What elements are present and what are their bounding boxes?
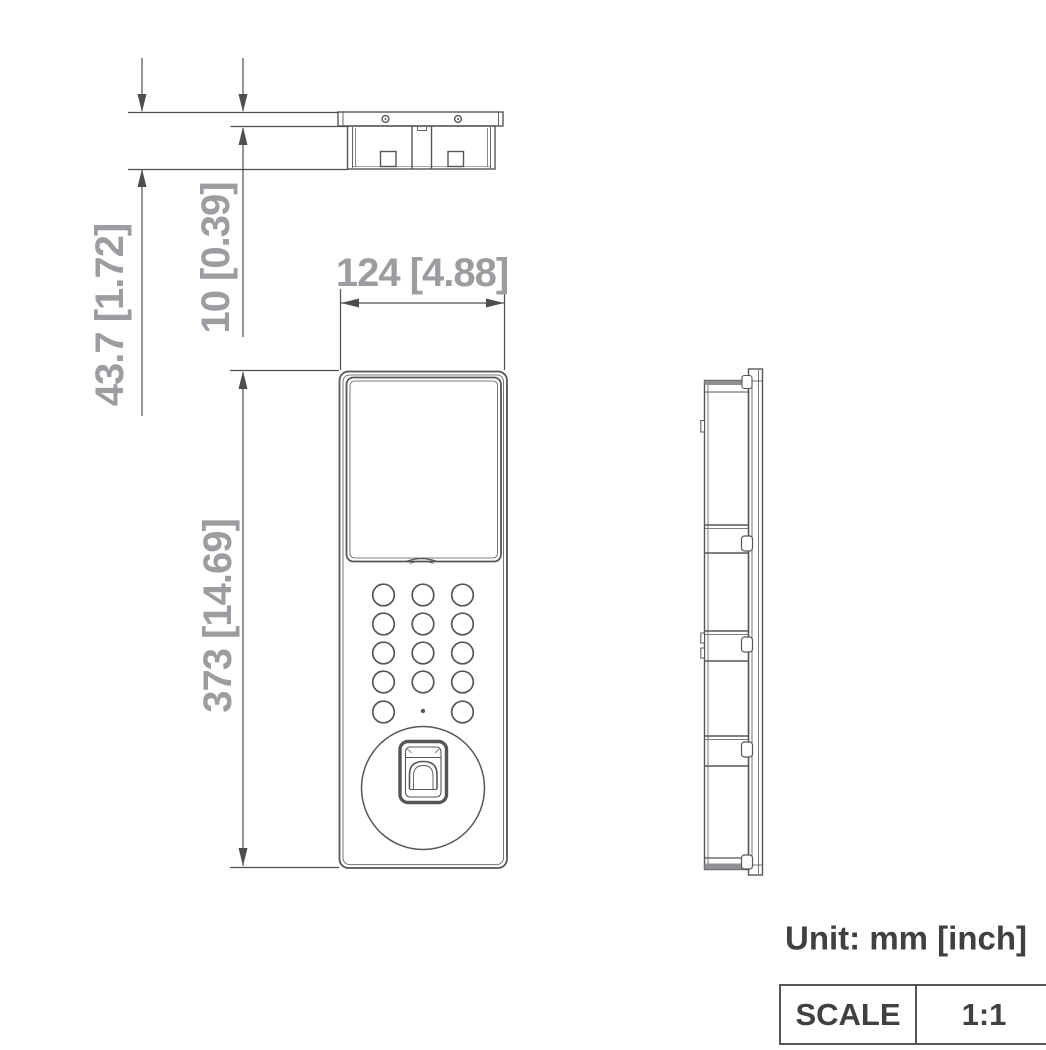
arrowhead-right [486,299,504,308]
side-view [701,369,763,875]
top-view [338,112,503,169]
side-left-tab [701,421,705,433]
keypad-button [373,671,395,693]
arrowhead-down [239,94,248,112]
scanner-corner-mark [408,749,412,753]
keypad-button [412,584,434,606]
arrowhead-up [138,169,147,187]
side-left-tab [701,633,705,643]
unit-note: Unit: mm [inch] [785,922,1027,955]
front-panel-bezel [343,375,504,865]
keypad-button [452,642,474,664]
scale-table-label: SCALE [781,986,917,1043]
arrowhead-down [239,848,248,866]
keypad-button [412,613,434,635]
mounting-clip [742,742,753,757]
front-view [340,372,508,869]
keypad-button [452,584,474,606]
dimension-drawing-page: 43.7 [1.72] 10 [0.39] 124 [4.88] 373 [14… [0,0,1046,1050]
finger-guide-inner [414,766,434,790]
indicator-dot [421,709,425,713]
screw-hole-center [385,118,387,120]
dim-width [341,289,505,370]
mounting-clip [742,376,752,389]
keypad [373,584,474,723]
dim-height [230,371,339,868]
top-view-back-box [348,126,496,169]
side-faceplate [749,369,763,875]
fingerprint-ring [362,727,485,850]
arrowhead-left [341,299,359,308]
mounting-clip [742,855,753,869]
dimension-lines [128,58,505,868]
arrowhead-down [138,94,147,112]
keypad-button [412,642,434,664]
top-view-faceplate [338,112,503,126]
side-left-tab [701,648,705,658]
screen [347,378,502,562]
arrowhead-up [239,127,248,145]
dim-total-depth [138,58,147,416]
keypad-button [373,642,395,664]
side-back-box [705,381,749,870]
dim-panel-thickness [239,58,248,337]
keypad-button [373,701,395,723]
mounting-clip [742,637,753,652]
keypad-button [452,701,474,723]
keypad-button [373,613,395,635]
front-panel-outline [340,372,508,869]
dim-label-height: 373 [14.69] [198,519,238,713]
dim-label-total-depth: 43.7 [1.72] [90,224,130,406]
keypad-button [452,671,474,693]
keypad-button [373,584,395,606]
scale-table: SCALE 1:1 [779,984,1046,1045]
fingerprint-scanner-frame [400,742,447,803]
keypad-button [412,671,434,693]
screen-inner [350,381,498,558]
keypad-button [452,613,474,635]
fingerprint-scanner [400,742,447,803]
drawing-canvas [0,0,1046,1050]
cable-opening [381,152,397,167]
mounting-clip [742,536,753,551]
dim-label-panel-thickness: 10 [0.39] [196,182,236,333]
cable-opening [448,152,464,167]
scale-table-value: 1:1 [917,986,1046,1043]
screw-hole-center [457,118,459,120]
scanner-corner-mark [435,749,439,753]
dim-label-width: 124 [4.88] [336,253,508,293]
arrowhead-up [239,371,248,389]
